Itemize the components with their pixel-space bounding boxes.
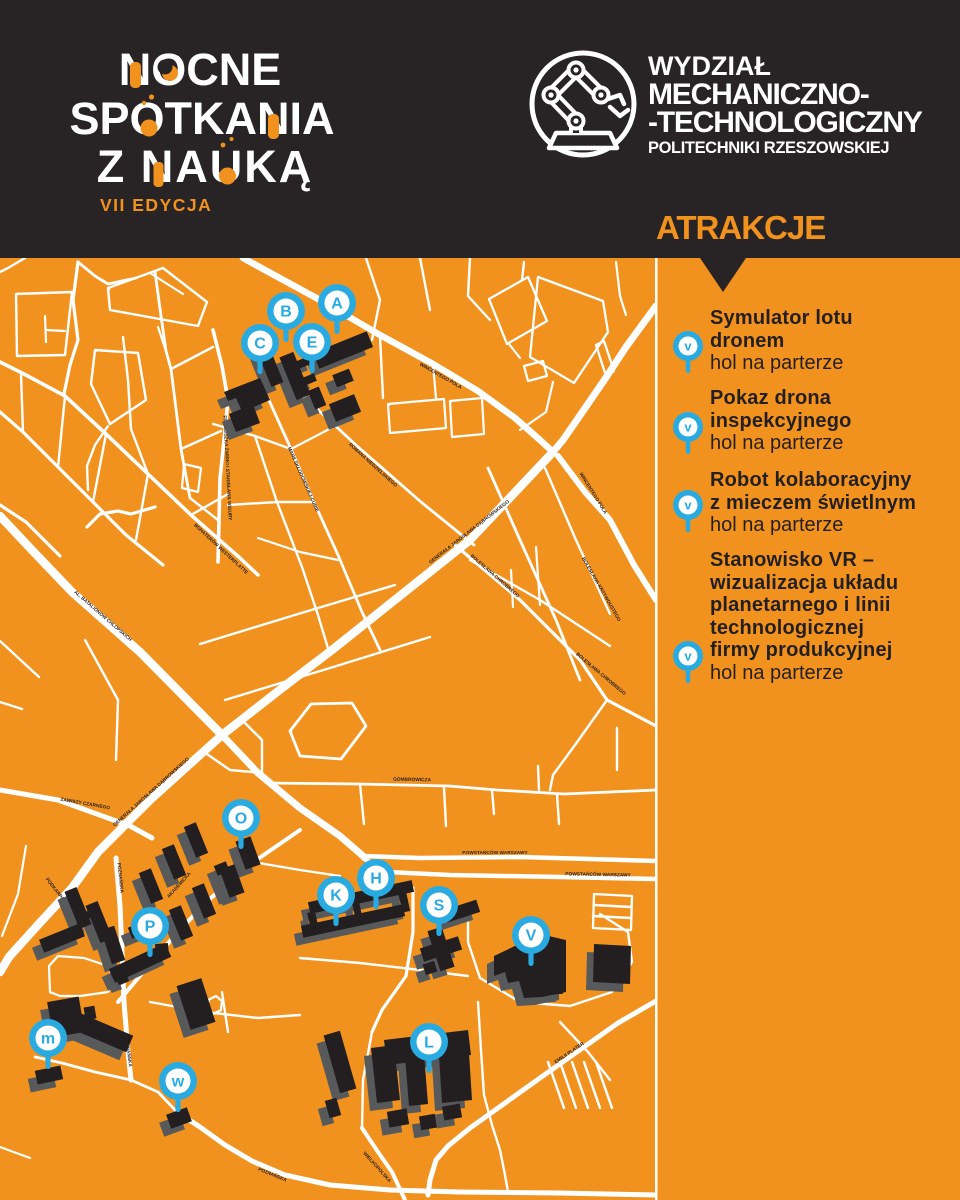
svg-text:K: K [330, 888, 342, 905]
svg-text:P: P [145, 919, 156, 936]
svg-text:E: E [307, 335, 318, 352]
svg-text:v: v [684, 498, 692, 513]
svg-text:S: S [434, 898, 445, 915]
svg-text:B: B [280, 304, 292, 321]
svg-text:v: v [684, 339, 692, 354]
svg-text:m: m [41, 1031, 55, 1048]
svg-text:C: C [254, 336, 266, 353]
svg-text:w: w [171, 1074, 185, 1091]
svg-text:GOMBROWICZA: GOMBROWICZA [393, 777, 431, 784]
svg-text:H: H [370, 871, 382, 888]
svg-text:L: L [424, 1035, 434, 1052]
svg-text:A: A [331, 296, 343, 313]
svg-text:O: O [235, 811, 247, 828]
svg-text:v: v [684, 649, 692, 664]
svg-text:V: V [526, 928, 537, 945]
svg-text:v: v [684, 420, 692, 435]
